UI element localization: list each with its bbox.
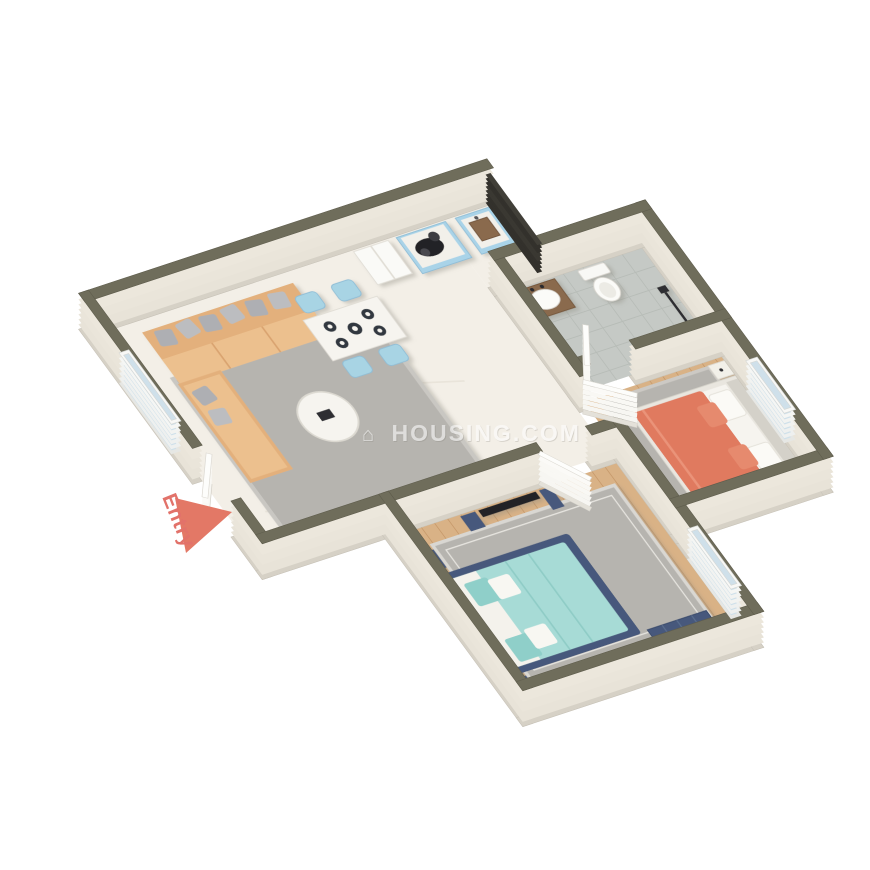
watermark-text: HOUSING.COM [391,420,580,446]
floor-plan-svg: Entry ⌂ HOUSING.COM [0,0,870,870]
watermark: ⌂ HOUSING.COM [362,420,581,446]
floor-plan-image: Entry ⌂ HOUSING.COM [0,0,870,870]
watermark-logo-icon: ⌂ [362,424,376,446]
